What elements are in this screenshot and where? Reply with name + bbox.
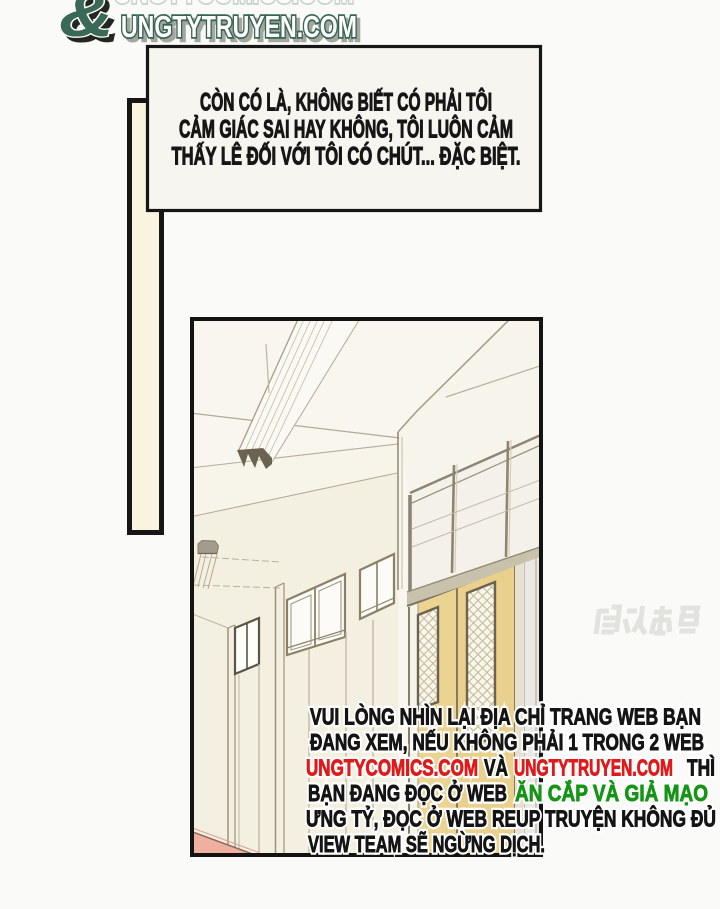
svg-text:ĐANG XEM, NẾU KHÔNG PHẢI 1 TRO: ĐANG XEM, NẾU KHÔNG PHẢI 1 TRONG 2 WEB [310, 727, 704, 755]
svg-text:ƯNG TỶ, ĐỌC Ở WEB REUP TRUYỆN: ƯNG TỶ, ĐỌC Ở WEB REUP TRUYỆN KHÔNG ĐỦ [306, 804, 716, 832]
svg-text:CÒN CÓ LÀ, KHÔNG BIẾT CÓ PHẢI: CÒN CÓ LÀ, KHÔNG BIẾT CÓ PHẢI TÔI [200, 87, 492, 117]
svg-text:BẠN ĐANG ĐỌC Ở WEB: BẠN ĐANG ĐỌC Ở WEB [308, 778, 507, 806]
svg-text:VÀ: VÀ [484, 754, 508, 781]
svg-text:CẢM GIÁC SAI HAY KHÔNG, TÔI LU: CẢM GIÁC SAI HAY KHÔNG, TÔI LUÔN CẢM [179, 114, 513, 144]
svg-text:THÌ: THÌ [687, 754, 715, 781]
svg-text:VUI LÒNG NHÌN LẠI ĐỊA CHỈ TRAN: VUI LÒNG NHÌN LẠI ĐỊA CHỈ TRANG WEB BẠN [310, 702, 701, 730]
svg-text:UNGTYTRUYEN.COM: UNGTYTRUYEN.COM [514, 755, 673, 781]
svg-text:&: & [59, 0, 114, 49]
svg-text:UNGTYCOMICS.COM: UNGTYCOMICS.COM [306, 755, 478, 781]
svg-text:ĂN CẮP VÀ GIẢ MẠO: ĂN CẮP VÀ GIẢ MẠO [515, 778, 708, 806]
svg-text:UNGTYTRUYEN.COM: UNGTYTRUYEN.COM [121, 9, 357, 44]
svg-text:VIEW TEAM SẼ NGỪNG DỊCH.: VIEW TEAM SẼ NGỪNG DỊCH. [308, 830, 545, 857]
svg-text:THẤY LÊ ĐỐI VỚI TÔI CÓ CHÚT...: THẤY LÊ ĐỐI VỚI TÔI CÓ CHÚT... ĐẶC BIỆT. [172, 141, 521, 171]
